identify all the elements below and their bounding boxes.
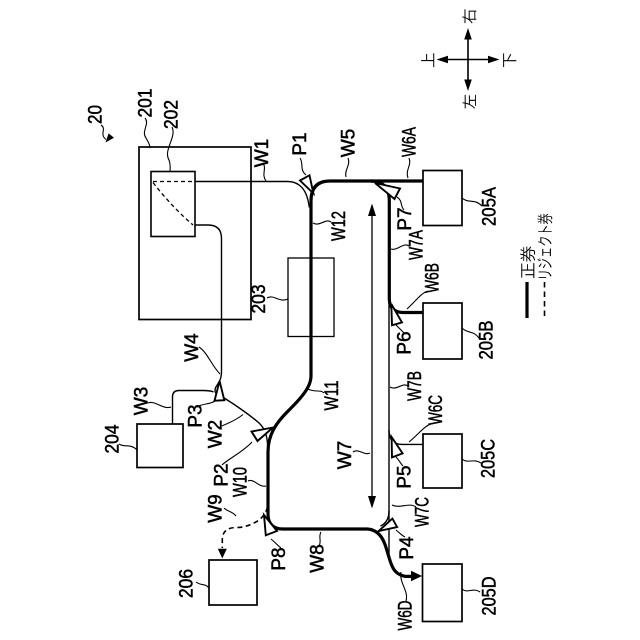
svg-text:W4: W4 xyxy=(182,333,203,362)
svg-text:P2: P2 xyxy=(212,463,233,486)
svg-text:W11: W11 xyxy=(322,381,343,411)
svg-text:205D: 205D xyxy=(480,577,501,616)
svg-text:W7A: W7A xyxy=(407,230,428,260)
svg-text:W5: W5 xyxy=(339,129,360,158)
svg-text:W6A: W6A xyxy=(400,127,421,157)
svg-text:W10: W10 xyxy=(231,467,252,497)
svg-text:205C: 205C xyxy=(479,439,500,478)
svg-text:201: 201 xyxy=(135,89,156,118)
svg-text:W12: W12 xyxy=(329,211,350,241)
svg-text:P3: P3 xyxy=(186,404,207,427)
svg-text:W8: W8 xyxy=(308,544,329,573)
svg-text:205B: 205B xyxy=(477,321,498,360)
svg-text:W6C: W6C xyxy=(426,395,447,425)
svg-text:W1: W1 xyxy=(252,139,273,168)
svg-text:W6D: W6D xyxy=(396,601,417,631)
svg-text:205A: 205A xyxy=(480,187,501,226)
svg-text:W3: W3 xyxy=(132,387,153,416)
svg-text:203: 203 xyxy=(249,285,270,314)
svg-text:W9: W9 xyxy=(206,494,227,523)
svg-text:W7C: W7C xyxy=(413,497,434,527)
svg-text:P5: P5 xyxy=(394,465,415,488)
svg-text:P4: P4 xyxy=(397,536,418,560)
svg-text:20: 20 xyxy=(86,105,107,124)
svg-text:P7: P7 xyxy=(395,207,416,230)
svg-text:206: 206 xyxy=(177,569,198,598)
svg-text:P1: P1 xyxy=(290,132,311,155)
svg-text:W6B: W6B xyxy=(423,263,444,293)
svg-text:W7B: W7B xyxy=(405,371,426,401)
svg-text:202: 202 xyxy=(162,100,183,129)
svg-text:204: 204 xyxy=(103,424,124,453)
svg-text:W7: W7 xyxy=(335,441,356,470)
svg-text:W2: W2 xyxy=(206,420,227,449)
svg-text:P8: P8 xyxy=(269,547,290,570)
svg-text:P6: P6 xyxy=(395,331,416,354)
